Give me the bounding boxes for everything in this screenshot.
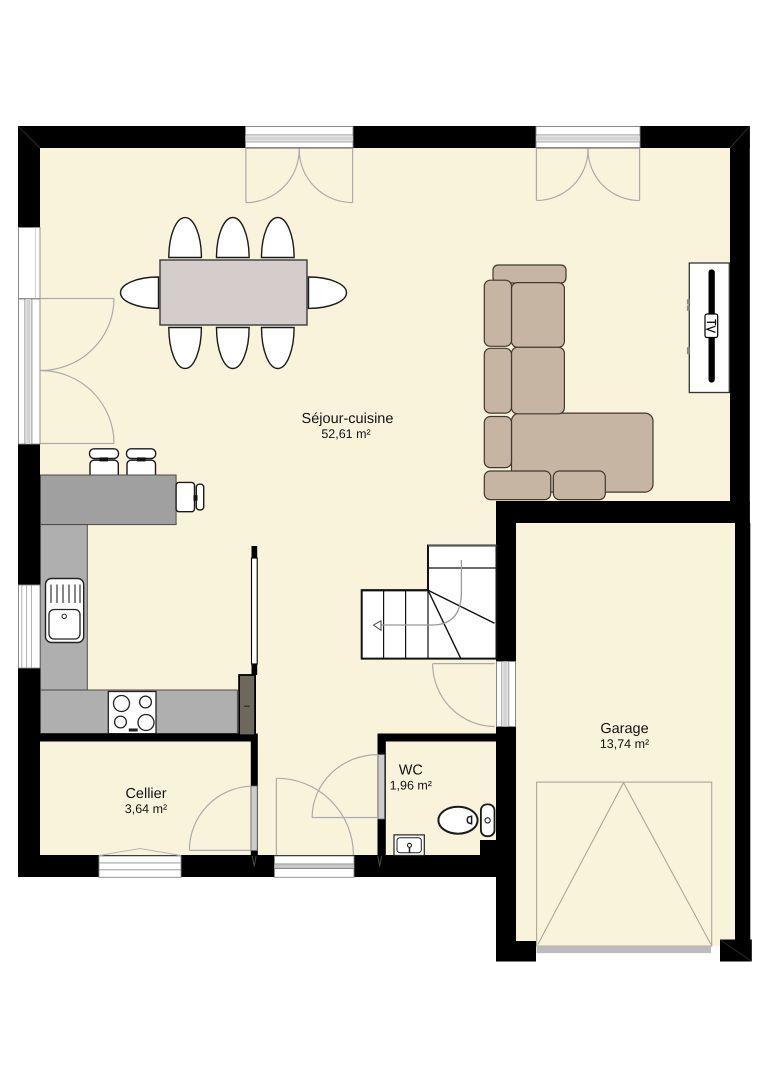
svg-text:Séjour-cuisine: Séjour-cuisine xyxy=(302,411,394,427)
svg-text:13,74 m²: 13,74 m² xyxy=(600,737,649,751)
svg-text:52,61 m²: 52,61 m² xyxy=(321,427,370,441)
svg-text:3,64 m²: 3,64 m² xyxy=(125,802,167,816)
svg-text:WC: WC xyxy=(399,763,423,779)
svg-text:Garage: Garage xyxy=(600,721,648,737)
svg-text:Cellier: Cellier xyxy=(125,786,166,802)
svg-text:1,96 m²: 1,96 m² xyxy=(390,779,432,793)
